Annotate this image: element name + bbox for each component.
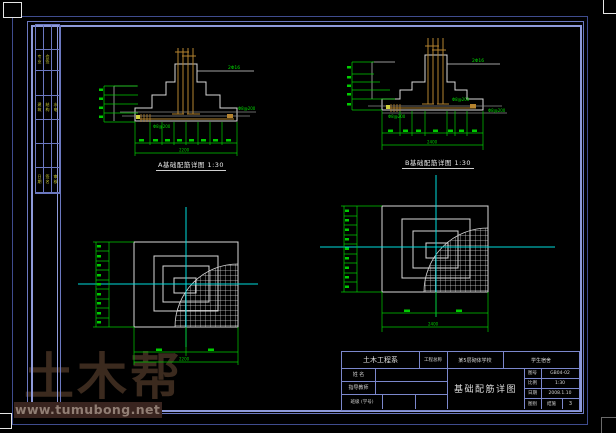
- svg-text:Φ8@200: Φ8@200: [388, 114, 406, 119]
- section-a-caption: A基础配筋详图 1:30: [156, 159, 226, 171]
- title-block-class-value-1: [382, 394, 416, 409]
- info-row-value: 结施: [541, 398, 563, 409]
- info-row-label: 图别: [524, 398, 542, 409]
- plan-detail-a: 2200: [78, 207, 258, 365]
- title-block-class-value-2: [415, 394, 448, 409]
- title-block-name-label: 姓 名: [342, 368, 376, 382]
- svg-text:Φ8@200: Φ8@200: [238, 106, 256, 111]
- svg-text:2200: 2200: [179, 148, 190, 153]
- svg-text:2Φ16: 2Φ16: [472, 58, 484, 64]
- svg-text:2400: 2400: [427, 140, 438, 145]
- info-row-sheet-number: 3: [562, 398, 579, 409]
- title-block: 土木工程系 工程总称 某5层砌体学校 学生宿舍 姓 名 指导教师 班级 (学号)…: [341, 351, 580, 411]
- title-block-project-name: 某5层砌体学校: [447, 352, 504, 369]
- title-block-advisor-value: [375, 381, 448, 395]
- title-block-class-label: 班级 (学号): [342, 394, 383, 409]
- title-block-advisor-label: 指导教师: [342, 381, 376, 395]
- svg-text:2Φ16: 2Φ16: [228, 65, 240, 71]
- title-block-name-value: [375, 368, 448, 382]
- svg-text:2200: 2200: [179, 357, 190, 362]
- title-block-department: 土木工程系: [342, 352, 420, 369]
- cad-sheet: 土木帮 专业 会签 建筑 结构 水电 日期 签名 审核: [0, 0, 616, 433]
- section-detail-b: 2Φ16 Φ8@200 Φ8@200 Φ8@200 2400: [347, 38, 507, 150]
- watermark-url: www.tumubong.net: [14, 402, 162, 418]
- svg-text:Φ8@200: Φ8@200: [488, 108, 506, 113]
- svg-text:Φ8@200: Φ8@200: [452, 97, 470, 102]
- title-block-project-label: 工程总称: [419, 352, 448, 369]
- section-b-caption: B基础配筋详图 1:30: [402, 157, 474, 169]
- plan-detail-b: 2400: [320, 175, 555, 332]
- svg-text:2400: 2400: [428, 322, 439, 327]
- title-block-drawing-title: 基础配筋详图: [447, 368, 525, 409]
- section-detail-a: 2Φ16 Φ8@200 Φ8@200 2200: [99, 48, 256, 156]
- title-block-subproject: 学生宿舍: [503, 352, 579, 369]
